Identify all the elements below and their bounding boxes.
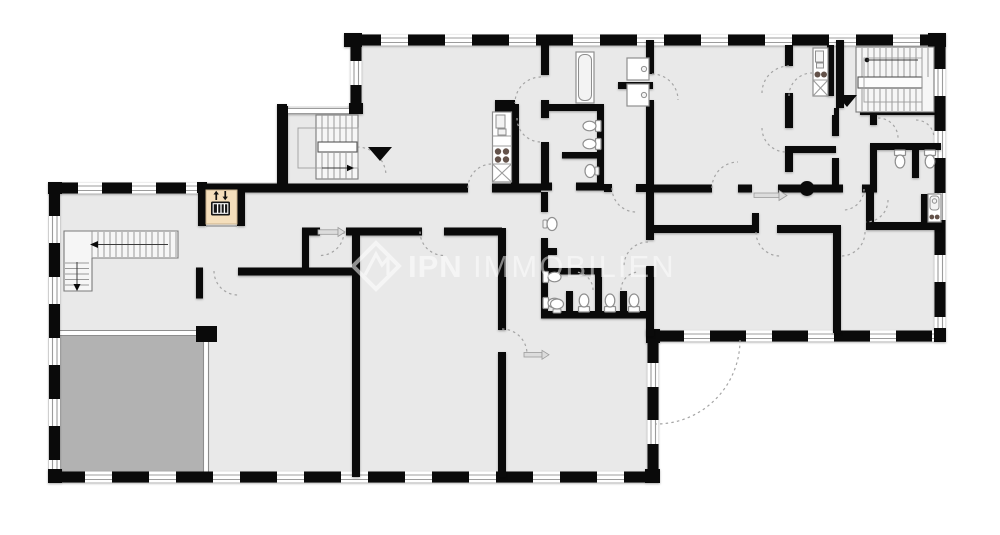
kitchen-unit-center <box>493 112 512 182</box>
shower-tray-upper <box>627 58 649 80</box>
watermark-brand: IPN <box>408 249 463 284</box>
floorplan-svg: IPN IMMOBILIEN <box>0 0 1000 535</box>
elevator <box>206 190 237 226</box>
staircase-right <box>856 47 934 112</box>
kitchen-unit-right <box>813 48 828 96</box>
shower-tray-lower <box>627 84 649 106</box>
kitchenette-far-right <box>928 194 941 222</box>
watermark-brand-suffix: IMMOBILIEN <box>473 249 676 284</box>
main-entrance-swing <box>656 340 740 424</box>
column-dot <box>800 181 815 196</box>
floorplan-canvas: IPN IMMOBILIEN <box>0 0 1000 535</box>
highlight-room <box>57 336 204 477</box>
bathtub <box>576 52 594 103</box>
